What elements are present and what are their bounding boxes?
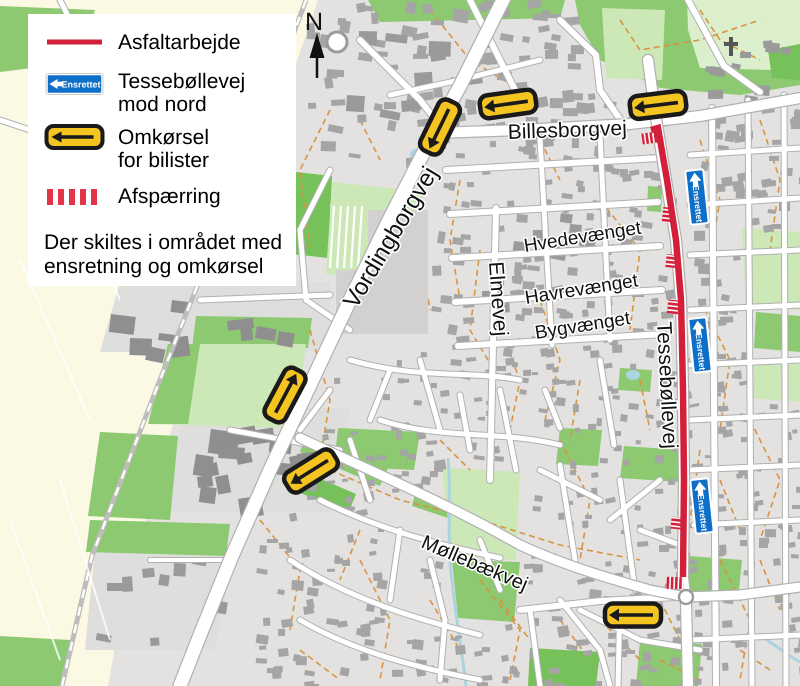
svg-text:Asfaltarbejde: Asfaltarbejde bbox=[118, 31, 241, 54]
svg-text:Tessebøllevej: Tessebøllevej bbox=[118, 70, 245, 93]
svg-text:N: N bbox=[305, 8, 323, 36]
svg-text:Ensrettet: Ensrettet bbox=[62, 79, 101, 89]
svg-text:Billesborgvej: Billesborgvej bbox=[507, 117, 627, 144]
svg-text:Der skiltes i området med: Der skiltes i området med bbox=[44, 231, 282, 254]
svg-text:mod nord: mod nord bbox=[118, 93, 207, 116]
svg-text:Omkørsel: Omkørsel bbox=[118, 126, 209, 149]
svg-text:Afspærring: Afspærring bbox=[118, 185, 221, 208]
svg-text:ensretning og omkørsel: ensretning og omkørsel bbox=[44, 255, 263, 278]
svg-text:for bilister: for bilister bbox=[118, 149, 209, 172]
